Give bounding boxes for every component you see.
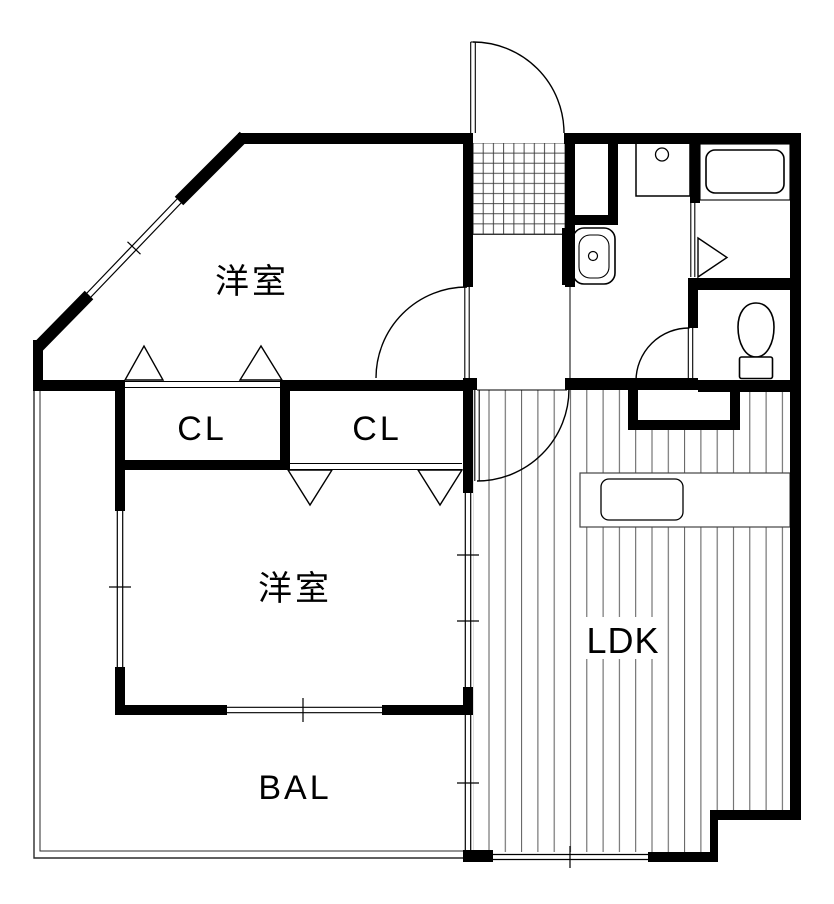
room-label-balcony: BAL <box>258 769 331 807</box>
wall-top-left <box>238 133 473 144</box>
room-label-bedroom-lower: 洋室 <box>258 570 332 608</box>
wall-top-right <box>564 133 801 144</box>
room-label-closet-lower: CL <box>352 410 401 448</box>
kitchen-sink <box>601 479 683 520</box>
washbasin <box>573 228 615 284</box>
room-label-closet-upper: CL <box>177 410 226 448</box>
washing-machine-pan <box>636 143 690 196</box>
genkan-tile-grid <box>473 143 565 235</box>
bathtub <box>700 144 790 200</box>
wall-right <box>790 133 801 820</box>
storage-recess <box>628 386 740 430</box>
wall-bedroom-upper-bottom <box>33 380 123 391</box>
toilet <box>738 303 774 379</box>
floorplan-canvas: 洋室 洋室 CL CL LDK BAL <box>0 0 834 904</box>
room-label-bedroom-upper: 洋室 <box>215 263 289 301</box>
room-label-ldk: LDK <box>586 620 659 661</box>
kitchen-counter <box>580 473 790 527</box>
